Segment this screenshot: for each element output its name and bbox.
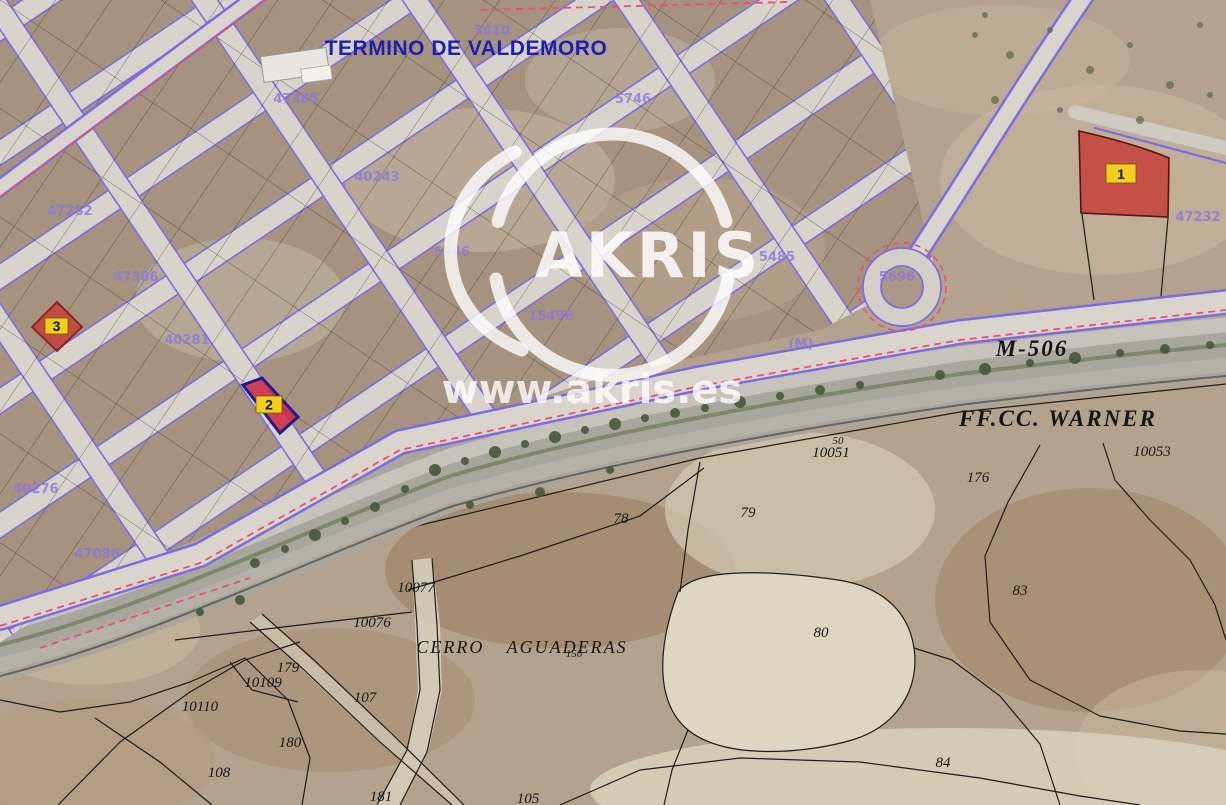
watermark-website-text: www.akris.es bbox=[442, 367, 742, 413]
parcel-number: 107 bbox=[354, 690, 378, 706]
parcel-number: 47086 bbox=[74, 547, 119, 562]
parcel-number: 10077 bbox=[397, 580, 436, 596]
parcel-number: 10053 bbox=[1133, 444, 1171, 460]
parcel-number: 10110 bbox=[182, 699, 219, 715]
parcel-number: 47386 bbox=[113, 270, 158, 285]
light-field-parcel-80 bbox=[663, 573, 915, 752]
parcel-number: 179 bbox=[277, 660, 300, 676]
road-m506-label: M-506 bbox=[995, 336, 1069, 361]
parcel-number: 80 bbox=[814, 625, 830, 641]
parcel-number: 40281 bbox=[164, 333, 209, 348]
cerro-aguaderas-label: CERRO AGUADERAS bbox=[416, 637, 627, 657]
marker-3-number: 3 bbox=[53, 318, 61, 334]
parcel-number: (M) bbox=[789, 337, 814, 352]
parcel-number: 40243 bbox=[354, 170, 399, 185]
parcel-number: 176 bbox=[967, 470, 990, 486]
parcel-number: 180 bbox=[279, 735, 302, 751]
parcel-number: 15496 bbox=[528, 309, 573, 324]
parcel-number: 47232 bbox=[1175, 210, 1220, 225]
parcel-number: 5485 bbox=[759, 250, 795, 265]
parcel-number: 40276 bbox=[13, 482, 58, 497]
map-canvas: 1 2 3 47282 47385 5610 5746 40243 5646 5… bbox=[0, 0, 1226, 805]
parcel-number: 105 bbox=[517, 791, 540, 805]
parcel-number: 47282 bbox=[47, 204, 92, 219]
parcel-number: 78 bbox=[614, 511, 630, 527]
aerial-cadastral-map[interactable]: 1 2 3 47282 47385 5610 5746 40243 5646 5… bbox=[0, 0, 1226, 805]
parcel-number: 181 bbox=[370, 789, 393, 805]
parcel-number: 5746 bbox=[615, 92, 651, 107]
railway-warner-label: FF.CC. WARNER bbox=[958, 406, 1157, 431]
parcel-number: 84 bbox=[936, 755, 952, 771]
parcel-number: 10051 bbox=[812, 445, 850, 461]
parcel-number: 108 bbox=[208, 765, 231, 781]
parcel-number: 5696 bbox=[879, 270, 915, 285]
parcel-number: 83 bbox=[1013, 583, 1028, 599]
municipality-label: TERMINO DE VALDEMORO bbox=[325, 37, 608, 60]
parcel-number: 79 bbox=[741, 505, 757, 521]
marker-2-number: 2 bbox=[265, 397, 273, 413]
parcel-number: 47385 bbox=[273, 92, 318, 107]
parcel-number: 10076 bbox=[353, 615, 391, 631]
watermark-brand-text: AKRIS bbox=[535, 219, 762, 292]
marker-1-number: 1 bbox=[1117, 166, 1125, 182]
parcel-number: 10109 bbox=[244, 675, 282, 691]
